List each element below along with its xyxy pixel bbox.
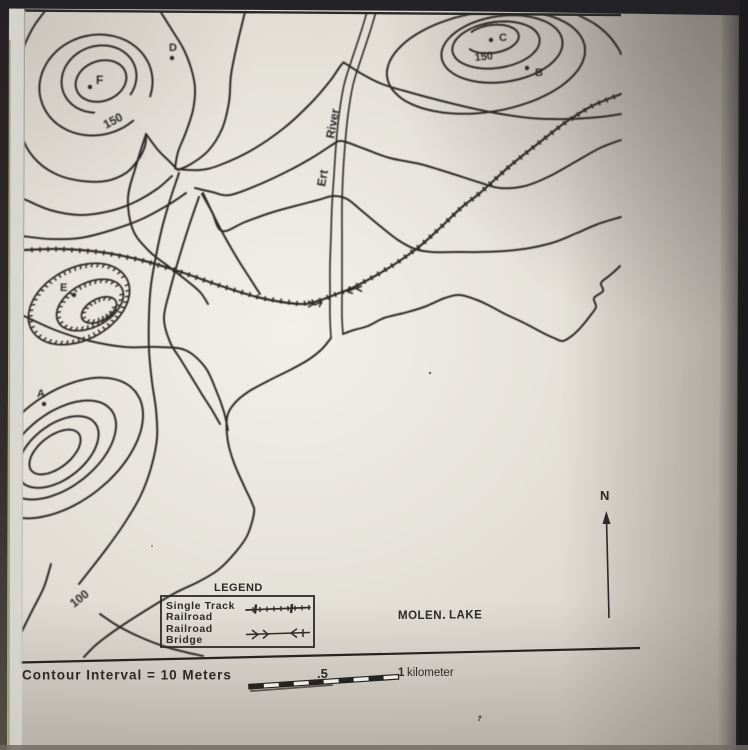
svg-text:River: River xyxy=(323,107,342,139)
svg-text:E: E xyxy=(60,282,67,294)
svg-text:B: B xyxy=(535,67,543,79)
svg-text:MOLEN: MOLEN xyxy=(398,610,442,622)
svg-text:Contour Interval = 10 Meters: Contour Interval = 10 Meters xyxy=(22,668,232,683)
svg-text:100: 100 xyxy=(67,587,92,611)
svg-text:Bridge: Bridge xyxy=(166,634,203,646)
svg-text:D: D xyxy=(169,42,177,54)
svg-text:LEGEND: LEGEND xyxy=(214,582,263,594)
svg-text:F: F xyxy=(96,73,103,87)
svg-text:kilometer: kilometer xyxy=(407,667,454,679)
svg-text:N: N xyxy=(600,488,609,503)
svg-text:Railroad: Railroad xyxy=(166,611,213,623)
svg-text:A: A xyxy=(37,388,45,400)
svg-text:C: C xyxy=(499,32,507,44)
svg-text:LAKE: LAKE xyxy=(449,610,482,622)
svg-text:150: 150 xyxy=(474,50,494,64)
svg-text:Ert: Ert xyxy=(314,169,331,188)
